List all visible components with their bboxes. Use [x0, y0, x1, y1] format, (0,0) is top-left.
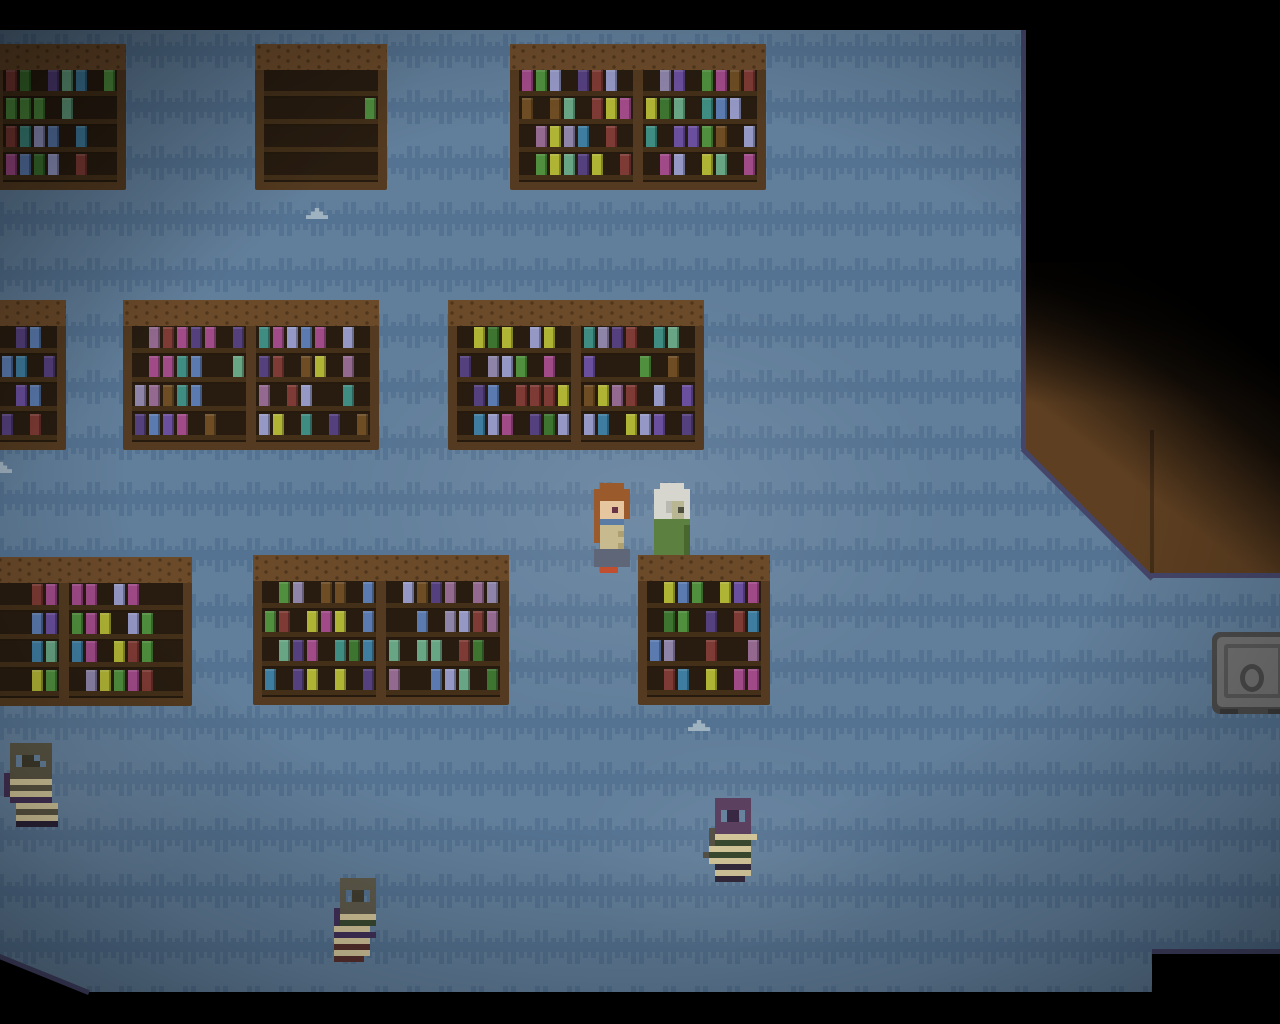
shelf-section	[262, 581, 376, 697]
shelf-mid-left-cut[interactable]	[0, 300, 66, 450]
shelf-section	[647, 581, 761, 697]
book	[516, 356, 527, 377]
book	[664, 669, 675, 690]
shelf-board	[262, 661, 376, 668]
book	[550, 70, 561, 91]
book	[343, 327, 354, 348]
shelf-board	[256, 348, 370, 355]
book	[564, 126, 575, 147]
shelf-top-board	[123, 300, 379, 326]
book	[48, 154, 59, 175]
shelf-board	[3, 147, 117, 154]
book	[273, 356, 284, 377]
shelf-board	[264, 91, 378, 98]
safe-dial-icon	[1240, 664, 1264, 692]
shelf-board	[647, 690, 761, 697]
book	[584, 327, 595, 348]
shelf-board	[643, 91, 757, 98]
book-stack-left[interactable]	[4, 743, 58, 827]
book	[363, 582, 374, 603]
book	[748, 669, 759, 690]
shelf-board	[581, 406, 695, 413]
book	[660, 154, 671, 175]
book	[606, 126, 617, 147]
book	[177, 327, 188, 348]
shelf-board	[3, 91, 117, 98]
book	[62, 70, 73, 91]
book	[149, 385, 160, 406]
book	[349, 640, 360, 661]
book	[536, 154, 547, 175]
book	[431, 669, 442, 690]
shelf-board	[386, 603, 500, 610]
book	[640, 356, 651, 377]
book	[692, 582, 703, 603]
book	[273, 414, 284, 435]
book	[640, 414, 651, 435]
shelf-board	[519, 119, 633, 126]
book	[702, 98, 713, 119]
book	[233, 327, 244, 348]
book	[445, 611, 456, 632]
shelf-board	[457, 377, 571, 384]
book	[522, 70, 533, 91]
book	[716, 98, 727, 119]
book	[578, 154, 589, 175]
book	[321, 611, 332, 632]
book	[114, 584, 125, 605]
book	[417, 582, 428, 603]
book	[664, 611, 675, 632]
book	[592, 70, 603, 91]
book	[86, 641, 97, 662]
shelf-board	[0, 605, 59, 612]
shelf-board	[0, 435, 57, 442]
book	[706, 611, 717, 632]
book	[748, 582, 759, 603]
book	[544, 356, 555, 377]
book	[592, 154, 603, 175]
book	[473, 582, 484, 603]
carpet-motif-row	[0, 986, 1280, 1020]
book	[6, 126, 17, 147]
book	[487, 611, 498, 632]
book	[702, 70, 713, 91]
shelf-board	[647, 661, 761, 668]
shelf-section	[3, 70, 117, 182]
book	[16, 385, 27, 406]
shelf-section	[386, 581, 500, 697]
book	[522, 98, 533, 119]
book	[674, 126, 685, 147]
book	[668, 327, 679, 348]
book	[149, 356, 160, 377]
shelf-section	[132, 326, 246, 442]
npc-elder-character[interactable]	[648, 483, 696, 561]
book	[34, 98, 45, 119]
book	[128, 670, 139, 691]
book	[744, 126, 755, 147]
book	[335, 640, 346, 661]
book	[417, 611, 428, 632]
shelf-top-board	[253, 555, 509, 581]
book	[530, 327, 541, 348]
shelf-board	[0, 634, 59, 641]
book	[100, 613, 111, 634]
room-edge-line	[1152, 949, 1280, 954]
book	[114, 670, 125, 691]
book	[177, 414, 188, 435]
book	[149, 327, 160, 348]
shelf-board	[69, 634, 183, 641]
shelf-mid-right[interactable]	[448, 300, 704, 450]
shelf-board	[386, 661, 500, 668]
book	[335, 669, 346, 690]
book	[558, 414, 569, 435]
book	[273, 327, 284, 348]
book	[474, 327, 485, 348]
shelf-bottom-mid[interactable]	[253, 555, 509, 705]
book	[301, 414, 312, 435]
book	[76, 126, 87, 147]
book	[678, 582, 689, 603]
shelf-board	[457, 406, 571, 413]
book	[315, 327, 326, 348]
book	[431, 640, 442, 661]
book	[32, 584, 43, 605]
book	[445, 582, 456, 603]
book	[473, 611, 484, 632]
book	[516, 385, 527, 406]
shelf-mid-left[interactable]	[123, 300, 379, 450]
book	[536, 70, 547, 91]
book	[163, 356, 174, 377]
book	[149, 414, 160, 435]
book	[163, 327, 174, 348]
book	[389, 669, 400, 690]
shelf-section	[0, 583, 59, 698]
book	[592, 98, 603, 119]
book	[730, 70, 741, 91]
shelf-board	[519, 91, 633, 98]
shelf-board	[132, 435, 246, 442]
book	[544, 385, 555, 406]
book	[502, 356, 513, 377]
book	[612, 385, 623, 406]
room-edge-line	[1150, 573, 1280, 578]
book	[163, 385, 174, 406]
book	[488, 414, 499, 435]
book	[654, 414, 665, 435]
book	[163, 414, 174, 435]
book	[128, 641, 139, 662]
shelf-board	[581, 377, 695, 384]
book	[550, 154, 561, 175]
book	[720, 582, 731, 603]
book	[660, 98, 671, 119]
shelf-top-board	[0, 44, 126, 70]
book	[114, 641, 125, 662]
book	[584, 385, 595, 406]
shelf-section	[519, 70, 633, 182]
book	[100, 670, 111, 691]
book	[6, 70, 17, 91]
book	[293, 640, 304, 661]
book	[301, 356, 312, 377]
book	[646, 98, 657, 119]
book	[626, 414, 637, 435]
shelf-board	[581, 348, 695, 355]
book	[86, 613, 97, 634]
book	[598, 385, 609, 406]
book	[716, 154, 727, 175]
book	[654, 385, 665, 406]
book	[265, 611, 276, 632]
book	[191, 327, 202, 348]
book	[287, 327, 298, 348]
book	[678, 669, 689, 690]
book	[6, 98, 17, 119]
shelf-board	[519, 147, 633, 154]
shelf-board	[69, 605, 183, 612]
shelf-section	[457, 326, 571, 442]
book	[502, 414, 513, 435]
room-edge-line	[1021, 30, 1026, 449]
shelf-board	[0, 662, 59, 669]
book	[674, 70, 685, 91]
carpet-motif-row	[0, 202, 1280, 236]
book	[46, 641, 57, 662]
player-girl-character[interactable]	[588, 483, 636, 573]
book	[674, 154, 685, 175]
book	[343, 385, 354, 406]
book	[688, 126, 699, 147]
book	[335, 582, 346, 603]
shelf-board	[643, 147, 757, 154]
book	[606, 70, 617, 91]
book	[30, 385, 41, 406]
book	[293, 669, 304, 690]
book	[32, 613, 43, 634]
shelf-section	[69, 583, 183, 698]
book	[487, 669, 498, 690]
book	[142, 613, 153, 634]
book	[544, 327, 555, 348]
book	[734, 582, 745, 603]
book	[488, 385, 499, 406]
book	[128, 584, 139, 605]
book	[487, 582, 498, 603]
book	[502, 327, 513, 348]
book	[48, 70, 59, 91]
book	[417, 640, 428, 661]
book	[30, 327, 41, 348]
book	[335, 611, 346, 632]
book	[6, 154, 17, 175]
book	[321, 582, 332, 603]
book	[459, 640, 470, 661]
shelf-board	[386, 690, 500, 697]
shelf-board	[256, 377, 370, 384]
book	[744, 70, 755, 91]
book	[702, 154, 713, 175]
shelf-board	[386, 632, 500, 639]
shelf-board	[581, 435, 695, 442]
shelf-board	[69, 662, 183, 669]
book	[365, 98, 376, 119]
safe-box[interactable]	[1212, 632, 1280, 714]
book	[734, 611, 745, 632]
shelf-board	[132, 377, 246, 384]
book	[86, 584, 97, 605]
book	[674, 98, 685, 119]
wood-floor-seam	[1150, 430, 1154, 576]
book	[76, 154, 87, 175]
book	[72, 584, 83, 605]
book	[128, 613, 139, 634]
shelf-top-board	[510, 44, 766, 70]
book	[660, 70, 671, 91]
book	[259, 385, 270, 406]
book	[544, 414, 555, 435]
book	[86, 670, 97, 691]
shelf-board	[647, 632, 761, 639]
book	[744, 154, 755, 175]
safe-foot	[1268, 709, 1280, 714]
shelf-board	[262, 603, 376, 610]
book	[459, 611, 470, 632]
shelf-bottom-right[interactable]	[638, 555, 770, 705]
shelf-board	[643, 175, 757, 182]
book	[626, 385, 637, 406]
shelf-top-empty[interactable]	[255, 44, 387, 190]
book	[564, 154, 575, 175]
shelf-top-board	[0, 557, 192, 583]
book	[44, 356, 55, 377]
book	[34, 126, 45, 147]
shelf-board	[0, 377, 57, 384]
book	[654, 327, 665, 348]
shelf-board	[3, 119, 117, 126]
shelf-board	[647, 603, 761, 610]
book	[20, 154, 31, 175]
book	[682, 385, 693, 406]
book	[646, 126, 657, 147]
book	[363, 611, 374, 632]
shelf-top-board	[638, 555, 770, 581]
shelf-board	[132, 406, 246, 413]
book	[307, 640, 318, 661]
shelf-section	[256, 326, 370, 442]
book	[488, 356, 499, 377]
book	[307, 611, 318, 632]
book	[530, 414, 541, 435]
book	[473, 640, 484, 661]
book	[293, 582, 304, 603]
book	[30, 414, 41, 435]
book	[259, 327, 270, 348]
book	[716, 70, 727, 91]
book	[301, 327, 312, 348]
book	[279, 640, 290, 661]
book-stack-lower[interactable]	[328, 878, 382, 962]
book	[34, 154, 45, 175]
book	[279, 582, 290, 603]
book-stack-middle[interactable]	[703, 798, 757, 882]
book	[445, 669, 456, 690]
shelf-board	[0, 691, 59, 698]
book	[682, 414, 693, 435]
shelf-board	[256, 406, 370, 413]
book	[431, 582, 442, 603]
book	[734, 669, 745, 690]
shelf-board	[457, 435, 571, 442]
book	[612, 327, 623, 348]
book	[329, 414, 340, 435]
book	[62, 98, 73, 119]
book	[259, 356, 270, 377]
book	[135, 414, 146, 435]
shelf-section	[264, 70, 378, 182]
book	[558, 385, 569, 406]
book	[72, 613, 83, 634]
shelf-board	[0, 348, 57, 355]
book	[606, 98, 617, 119]
book	[578, 70, 589, 91]
shelf-top-left[interactable]	[0, 44, 126, 190]
book	[460, 356, 471, 377]
shelf-board	[256, 435, 370, 442]
shelf-top-board	[255, 44, 387, 70]
book	[46, 670, 57, 691]
shelf-board	[262, 690, 376, 697]
shelf-bottom-left[interactable]	[0, 557, 192, 706]
book	[578, 126, 589, 147]
book	[598, 414, 609, 435]
book	[403, 582, 414, 603]
safe-foot	[1220, 709, 1238, 714]
book	[48, 126, 59, 147]
book	[706, 669, 717, 690]
shelf-board	[457, 348, 571, 355]
shelf-board	[264, 175, 378, 182]
book	[584, 356, 595, 377]
shelf-section	[643, 70, 757, 182]
book	[20, 126, 31, 147]
book	[363, 640, 374, 661]
shelf-top-double[interactable]	[510, 44, 766, 190]
book	[287, 385, 298, 406]
book	[678, 611, 689, 632]
book	[142, 641, 153, 662]
book	[488, 327, 499, 348]
book	[16, 356, 27, 377]
shelf-board	[264, 119, 378, 126]
book	[730, 98, 741, 119]
book	[650, 640, 661, 661]
shelf-board	[132, 348, 246, 355]
game-viewport[interactable]	[0, 0, 1280, 1024]
book	[598, 327, 609, 348]
book	[550, 126, 561, 147]
book	[46, 584, 57, 605]
book	[2, 414, 13, 435]
book	[279, 611, 290, 632]
shelf-board	[3, 175, 117, 182]
book	[536, 126, 547, 147]
shelf-board	[262, 632, 376, 639]
book	[474, 385, 485, 406]
